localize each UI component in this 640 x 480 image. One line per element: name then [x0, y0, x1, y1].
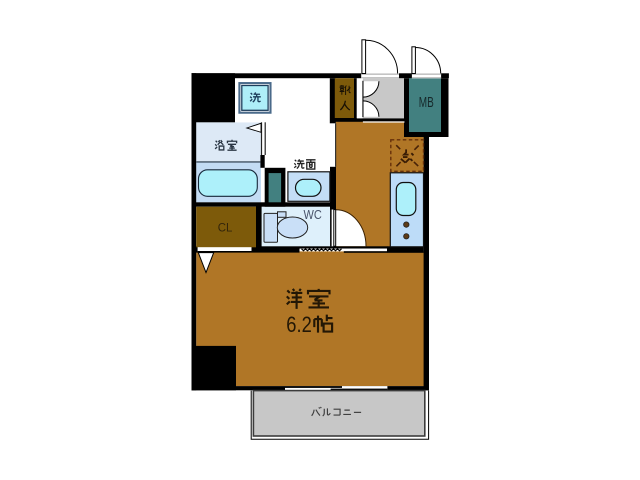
svg-text:MB: MB	[419, 95, 434, 111]
svg-text:WC: WC	[304, 208, 322, 222]
svg-text:6.2: 6.2	[286, 312, 312, 337]
svg-text:CL: CL	[218, 221, 233, 235]
